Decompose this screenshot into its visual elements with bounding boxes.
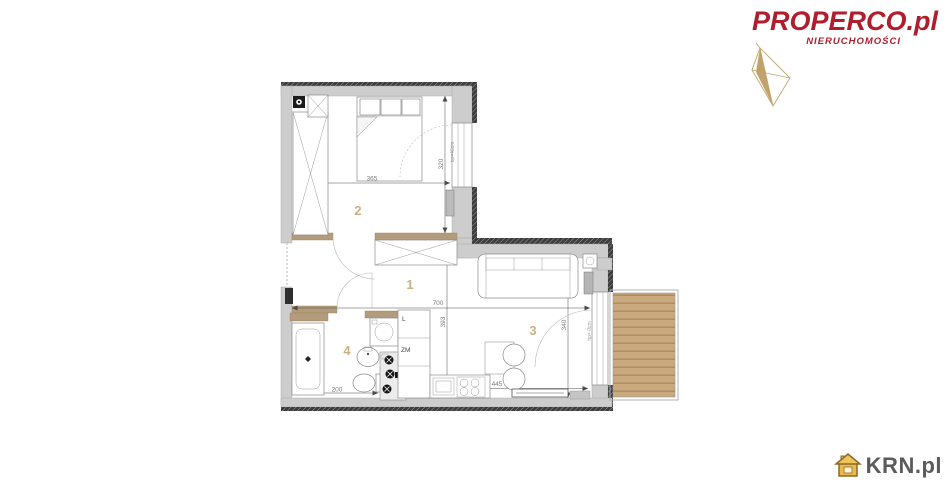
dim-apartment-width: 700 (433, 300, 444, 307)
electrical-point-symbol (293, 96, 305, 108)
dim-kitchen-width: 445 (492, 381, 503, 388)
house-icon (834, 452, 862, 480)
toilet (353, 374, 383, 392)
floor-plan: 365 320 700 393 340 445 200 hp=46cm hp= … (276, 76, 682, 416)
room-number-bedroom: 2 (354, 203, 361, 218)
balcony-door (592, 292, 608, 385)
washing-machine (370, 318, 398, 346)
bed (357, 97, 422, 181)
north-arrow-icon (748, 42, 804, 110)
bedroom-window-sill-label: hp=46cm (450, 142, 456, 163)
dim-bedroom-width: 365 (367, 176, 378, 183)
living-radiator (512, 389, 590, 399)
dishwasher-label: ZM (401, 347, 410, 354)
fridge-label: L (402, 316, 406, 323)
dim-bedroom-depth: 320 (438, 158, 445, 169)
room-number-bathroom: 4 (343, 343, 351, 358)
dim-living-depth: 340 (561, 319, 568, 330)
room-number-living-kitchen: 3 (529, 323, 536, 338)
sofa (478, 254, 578, 298)
dim-bathroom-width: 200 (332, 387, 343, 394)
bedroom-radiator (446, 190, 454, 216)
brand-name: PROPERCO.pl (752, 8, 938, 35)
krn-watermark: KRN.pl (834, 452, 942, 480)
living-wall-radiator (584, 272, 593, 294)
dim-interior-depth: 393 (440, 316, 447, 327)
bathtub (292, 323, 324, 395)
room-number-hall: 1 (406, 277, 413, 292)
listing-floorplan-image: PROPERCO.pl NIERUCHOMOŚCI (0, 0, 950, 490)
hall-wardrobe (375, 240, 457, 265)
krn-watermark-text: KRN.pl (866, 453, 942, 479)
balcony (610, 290, 678, 400)
entrance-door-leaf (285, 288, 293, 304)
bedroom-wardrobe (293, 95, 328, 235)
balcony-door-sill-label: hp= 0cm (587, 321, 593, 340)
wall-fixture (583, 254, 597, 268)
washbasin (357, 347, 379, 367)
